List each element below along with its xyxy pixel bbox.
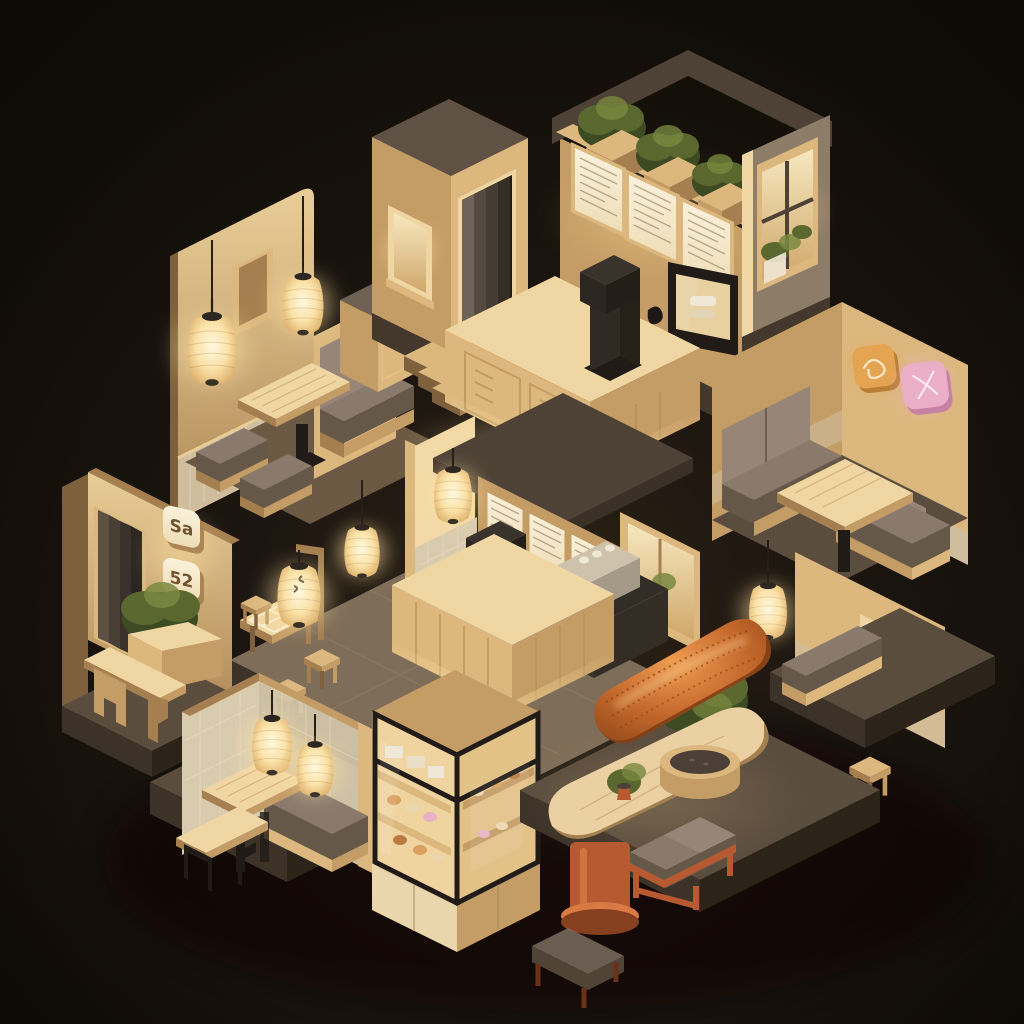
rendered-scene: Isometric night diorama of a Japanese ca… [0, 0, 1024, 1024]
vignette [0, 0, 1024, 1024]
isometric-cafe-illustration: Isometric night diorama of a Japanese ca… [0, 0, 1024, 1024]
